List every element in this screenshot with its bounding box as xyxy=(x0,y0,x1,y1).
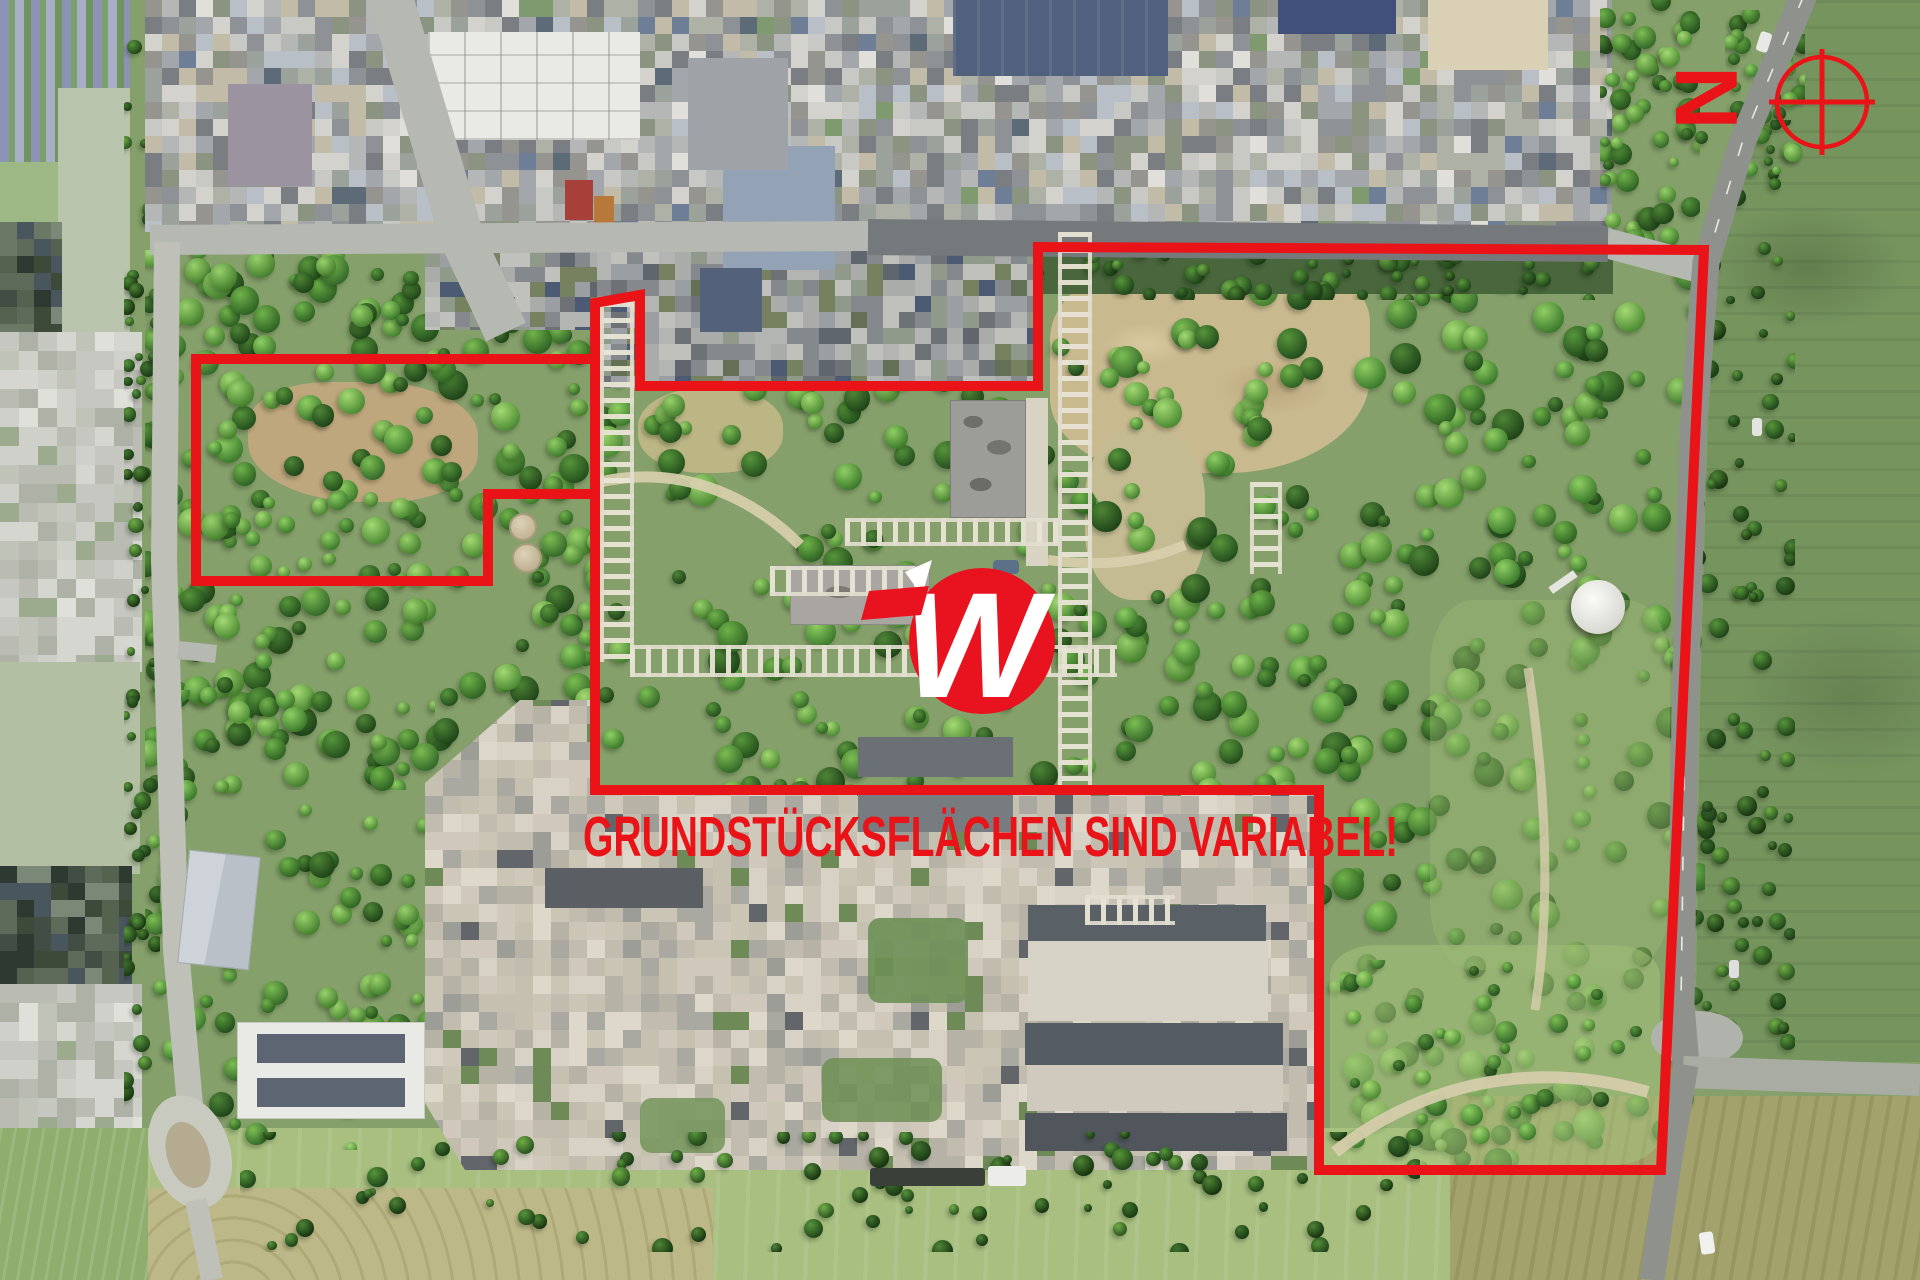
mosaic-cell xyxy=(502,221,520,232)
tree-blob xyxy=(367,1167,388,1188)
mosaic-cell xyxy=(1055,868,1074,887)
tree-blob xyxy=(549,351,567,369)
mosaic-cell xyxy=(57,389,77,409)
mosaic-cell xyxy=(808,0,826,18)
mosaic-cell xyxy=(995,280,1012,297)
mosaic-cell xyxy=(883,344,900,361)
tree-blob xyxy=(1707,729,1727,749)
mosaic-cell xyxy=(791,34,809,52)
mosaic-cell xyxy=(621,187,639,205)
mosaic-cell xyxy=(979,264,996,281)
mosaic-cell xyxy=(383,34,401,52)
tree-blob xyxy=(215,780,229,794)
mosaic-cell xyxy=(1012,187,1030,205)
mosaic-cell xyxy=(821,958,840,977)
mosaic-cell xyxy=(706,204,724,222)
mosaic-cell xyxy=(803,868,822,887)
mosaic-cell xyxy=(947,1084,966,1103)
mosaic-cell xyxy=(910,204,928,222)
mosaic-cell xyxy=(978,153,996,171)
mosaic-cell xyxy=(145,136,163,154)
mosaic-cell xyxy=(545,282,561,298)
tree-blob xyxy=(1356,1205,1371,1220)
tree-blob xyxy=(866,1215,879,1228)
mosaic-cell xyxy=(1454,85,1472,103)
mosaic-cell xyxy=(587,153,605,171)
mosaic-cell xyxy=(621,221,639,232)
mosaic-cell xyxy=(1011,360,1028,377)
mosaic-cell xyxy=(1539,204,1557,222)
mosaic-cell xyxy=(944,153,962,171)
mosaic-cell xyxy=(659,264,676,281)
mosaic-cell xyxy=(230,0,248,18)
pipe-rack-long xyxy=(630,645,1117,677)
mosaic-cell xyxy=(497,742,516,761)
mosaic-cell xyxy=(545,297,561,313)
mosaic-cell xyxy=(51,239,62,257)
tree-blob xyxy=(1426,1095,1447,1116)
mosaic-cell xyxy=(76,1079,96,1099)
mosaic-cell xyxy=(1284,119,1302,137)
tree-blob xyxy=(1717,812,1727,822)
mosaic-cell xyxy=(995,221,1013,232)
tree-blob xyxy=(246,531,261,546)
mosaic-cell xyxy=(1289,1066,1308,1085)
mosaic-cell xyxy=(1217,868,1236,887)
mosaic-cell xyxy=(965,1084,984,1103)
tree-blob xyxy=(1500,1043,1510,1053)
mosaic-cell xyxy=(38,617,58,637)
mosaic-cell xyxy=(1307,976,1320,995)
mosaic-cell xyxy=(1556,119,1574,137)
tree-blob xyxy=(132,849,145,862)
mosaic-cell xyxy=(264,187,282,205)
tree-blob xyxy=(612,1167,630,1185)
mosaic-cell xyxy=(0,951,18,969)
tree-blob xyxy=(1393,1060,1405,1072)
tree-blob xyxy=(1313,692,1344,723)
mosaic-cell xyxy=(947,312,964,329)
tree-blob xyxy=(578,602,596,620)
mosaic-cell xyxy=(349,68,367,86)
mosaic-cell xyxy=(145,51,163,69)
mosaic-cell xyxy=(785,1102,804,1121)
mosaic-cell xyxy=(1182,204,1200,222)
mosaic-cell xyxy=(569,1084,588,1103)
mosaic-cell xyxy=(440,252,456,268)
mosaic-cell xyxy=(963,376,980,388)
mosaic-cell xyxy=(947,296,964,313)
mosaic-cell xyxy=(659,376,676,388)
mosaic-cell xyxy=(1505,187,1523,205)
mosaic-cell xyxy=(162,85,180,103)
tree-blob xyxy=(388,563,401,576)
mosaic-cell xyxy=(19,560,39,580)
mosaic-cell xyxy=(1437,85,1455,103)
mosaic-cell xyxy=(1001,976,1020,995)
tree-blob xyxy=(1744,162,1758,176)
mosaic-cell xyxy=(57,427,77,447)
mosaic-cell xyxy=(1131,153,1149,171)
mosaic-cell xyxy=(533,1102,552,1121)
mosaic-cell xyxy=(963,312,980,329)
mosaic-cell xyxy=(1097,119,1115,137)
mosaic-cell xyxy=(332,187,350,205)
mosaic-cell xyxy=(623,1084,642,1103)
mosaic-cell xyxy=(757,17,775,35)
tree-blob xyxy=(1669,157,1679,167)
mosaic-cell xyxy=(1335,119,1353,137)
mosaic-cell xyxy=(787,360,804,377)
mosaic-cell xyxy=(34,917,52,935)
mosaic-cell xyxy=(995,376,1012,388)
mosaic-cell xyxy=(1556,102,1574,120)
tree-blob xyxy=(798,536,824,562)
tree-blob xyxy=(1124,483,1140,499)
mosaic-cell xyxy=(1352,153,1370,171)
mosaic-cell xyxy=(530,267,546,283)
mosaic-cell xyxy=(1505,85,1523,103)
mosaic-cell xyxy=(95,465,115,485)
mosaic-cell xyxy=(1437,136,1455,154)
mosaic-cell xyxy=(605,1048,624,1067)
mosaic-cell xyxy=(76,1022,96,1042)
mosaic-cell xyxy=(315,204,333,222)
tree-blob xyxy=(132,917,144,929)
mosaic-cell xyxy=(1216,68,1234,86)
mosaic-cell xyxy=(1284,85,1302,103)
mosaic-cell xyxy=(655,153,673,171)
mosaic-cell xyxy=(1335,170,1353,188)
mosaic-cell xyxy=(1301,136,1319,154)
mosaic-cell xyxy=(1199,0,1217,18)
mosaic-cell xyxy=(1267,153,1285,171)
mosaic-cell xyxy=(713,904,732,923)
tree-blob xyxy=(1350,1078,1360,1088)
tree-blob xyxy=(1672,1047,1691,1066)
mosaic-cell xyxy=(655,0,673,18)
mosaic-cell xyxy=(944,204,962,222)
mosaic-cell xyxy=(910,136,928,154)
mosaic-cell xyxy=(1386,102,1404,120)
tree-blob xyxy=(1259,1202,1268,1211)
mosaic-cell xyxy=(1148,85,1166,103)
mosaic-cell xyxy=(1403,204,1421,222)
mosaic-cell xyxy=(1352,119,1370,137)
mosaic-cell xyxy=(876,17,894,35)
mosaic-cell xyxy=(785,922,804,941)
tree-blob xyxy=(127,696,139,708)
tree-blob xyxy=(771,1243,782,1252)
mosaic-cell xyxy=(479,868,498,887)
mosaic-cell xyxy=(1318,68,1336,86)
mosaic-cell xyxy=(332,34,350,52)
mosaic-cell xyxy=(349,0,367,18)
car-east-4 xyxy=(1699,1231,1716,1255)
mosaic-cell xyxy=(785,1048,804,1067)
mosaic-cell xyxy=(1001,994,1020,1013)
mosaic-cell xyxy=(315,170,333,188)
mosaic-cell xyxy=(927,221,945,232)
mosaic-cell xyxy=(731,1030,750,1049)
mosaic-cell xyxy=(500,327,516,330)
mosaic-cell xyxy=(383,85,401,103)
mosaic-cell xyxy=(575,267,591,283)
dark-blue-roof xyxy=(953,0,1168,76)
mosaic-cell xyxy=(162,34,180,52)
tree-blob xyxy=(1342,269,1351,278)
tree-blob xyxy=(1210,534,1238,562)
mosaic-cell xyxy=(479,1102,498,1121)
mosaic-cell xyxy=(1556,85,1574,103)
mosaic-cell xyxy=(1573,68,1591,86)
mosaic-cell xyxy=(851,312,868,329)
mosaic-cell xyxy=(281,17,299,35)
lot-green-2 xyxy=(822,1058,942,1122)
mosaic-cell xyxy=(983,940,1002,959)
mosaic-cell xyxy=(0,1098,20,1118)
tree-blob xyxy=(294,301,315,322)
mosaic-cell xyxy=(38,1041,58,1061)
tree-blob xyxy=(1254,283,1271,300)
mosaic-cell xyxy=(1307,940,1320,959)
mosaic-cell xyxy=(0,370,20,390)
mosaic-cell xyxy=(57,541,77,561)
mosaic-cell xyxy=(145,153,163,171)
mosaic-cell xyxy=(1284,170,1302,188)
mosaic-cell xyxy=(808,51,826,69)
tree-blob xyxy=(205,326,225,346)
mosaic-cell xyxy=(915,280,932,297)
mosaic-cell xyxy=(791,17,809,35)
mosaic-cell xyxy=(899,264,916,281)
tree-blob xyxy=(370,864,392,886)
mosaic-cell xyxy=(983,994,1002,1013)
mosaic-cell xyxy=(1250,153,1268,171)
mosaic-cell xyxy=(0,560,20,580)
mosaic-cell xyxy=(1027,344,1038,361)
mosaic-cell xyxy=(145,0,163,18)
tree-blob xyxy=(715,716,732,733)
mosaic-cell xyxy=(1369,153,1387,171)
tree-blob xyxy=(253,335,276,358)
mosaic-cell xyxy=(1505,153,1523,171)
tree-blob xyxy=(1780,1034,1795,1050)
mosaic-cell xyxy=(638,170,656,188)
tree-blob xyxy=(285,1233,299,1247)
mosaic-cell xyxy=(1001,1048,1020,1067)
mosaic-cell xyxy=(931,360,948,377)
mosaic-cell xyxy=(638,153,656,171)
mosaic-cell xyxy=(749,1102,768,1121)
mosaic-cell xyxy=(587,1084,606,1103)
mosaic-cell xyxy=(931,264,948,281)
mosaic-cell xyxy=(76,984,96,1004)
mosaic-cell xyxy=(983,868,1002,887)
tree-blob xyxy=(1768,841,1777,850)
mosaic-cell xyxy=(979,312,996,329)
tree-blob xyxy=(370,766,395,791)
mosaic-cell xyxy=(1011,280,1028,297)
mosaic-cell xyxy=(461,868,480,887)
tree-blob xyxy=(1766,145,1775,154)
mosaic-cell xyxy=(575,327,591,330)
mosaic-cell xyxy=(515,312,531,328)
mosaic-cell xyxy=(1403,170,1421,188)
tree-blob xyxy=(1770,993,1787,1010)
tree-blob xyxy=(1380,286,1396,300)
tree-blob xyxy=(911,1141,931,1161)
mosaic-cell xyxy=(247,0,265,18)
mosaic-cell xyxy=(641,940,660,959)
mosaic-cell xyxy=(545,267,561,283)
mosaic-cell xyxy=(1012,204,1030,222)
mosaic-cell xyxy=(425,1048,444,1067)
mosaic-cell xyxy=(835,296,852,313)
mosaic-cell xyxy=(545,327,561,330)
mosaic-cell xyxy=(76,617,96,637)
mosaic-cell xyxy=(961,187,979,205)
mosaic-cell xyxy=(349,187,367,205)
mosaic-cell xyxy=(1556,170,1574,188)
tree-blob xyxy=(1605,73,1619,87)
mosaic-cell xyxy=(1182,68,1200,86)
ruin-building-a xyxy=(950,400,1026,518)
mosaic-cell xyxy=(515,886,534,905)
mosaic-cell xyxy=(839,976,858,995)
mosaic-cell xyxy=(965,904,984,923)
mosaic-cell xyxy=(332,153,350,171)
mosaic-cell xyxy=(57,370,77,390)
mosaic-cell xyxy=(315,221,333,232)
mosaic-cell xyxy=(76,1060,96,1080)
mosaic-cell xyxy=(536,221,554,232)
tree-blob xyxy=(1197,264,1210,277)
mosaic-cell xyxy=(560,252,576,268)
mosaic-cell xyxy=(19,389,39,409)
mosaic-cell xyxy=(1369,51,1387,69)
mosaic-cell xyxy=(515,1048,534,1067)
mosaic-cell xyxy=(468,170,486,188)
mosaic-cell xyxy=(551,706,570,725)
mosaic-cell xyxy=(461,922,480,941)
mosaic-cell xyxy=(675,376,692,388)
mosaic-cell xyxy=(749,994,768,1013)
mosaic-cell xyxy=(315,119,333,137)
mosaic-cell xyxy=(1301,153,1319,171)
mosaic-cell xyxy=(867,280,884,297)
tree-blob xyxy=(1388,1136,1409,1157)
tree-blob xyxy=(250,555,272,577)
tree-blob xyxy=(1602,237,1624,255)
mosaic-cell xyxy=(767,922,786,941)
tree-blob xyxy=(295,910,320,935)
mosaic-cell xyxy=(739,344,756,361)
mosaic-cell xyxy=(366,34,384,52)
mosaic-cell xyxy=(821,1012,840,1031)
mosaic-cell xyxy=(515,868,534,887)
tree-blob xyxy=(741,451,767,477)
tree-blob xyxy=(364,620,387,643)
mosaic-cell xyxy=(899,344,916,361)
tree-blob xyxy=(824,423,844,443)
mosaic-cell xyxy=(515,297,531,313)
mosaic-cell xyxy=(247,221,265,232)
tree-blob xyxy=(369,973,391,995)
mosaic-cell xyxy=(859,170,877,188)
mosaic-cell xyxy=(497,778,516,797)
tree-blob xyxy=(1778,963,1795,980)
mosaic-cell xyxy=(623,940,642,959)
mosaic-cell xyxy=(551,922,570,941)
tree-blob xyxy=(691,1227,706,1242)
mosaic-cell xyxy=(366,170,384,188)
mosaic-cell xyxy=(497,1102,516,1121)
tree-blob xyxy=(321,531,340,550)
mosaic-cell xyxy=(1539,187,1557,205)
mosaic-cell xyxy=(1029,153,1047,171)
tan-roof xyxy=(1428,0,1548,70)
mosaic-cell xyxy=(1046,204,1064,222)
mosaic-cell xyxy=(689,17,707,35)
mosaic-cell xyxy=(859,68,877,86)
mosaic-cell xyxy=(145,68,163,86)
tree-blob xyxy=(1287,623,1309,645)
mosaic-cell xyxy=(713,886,732,905)
mosaic-cell xyxy=(85,900,103,918)
mosaic-cell xyxy=(851,280,868,297)
mosaic-cell xyxy=(95,503,115,523)
mosaic-cell xyxy=(264,204,282,222)
tree-blob xyxy=(124,359,135,372)
mosaic-cell xyxy=(560,267,576,283)
mosaic-cell xyxy=(1488,187,1506,205)
mosaic-cell xyxy=(17,866,35,884)
mosaic-cell xyxy=(213,221,231,232)
mosaic-cell xyxy=(1250,170,1268,188)
mosaic-cell xyxy=(1284,136,1302,154)
mosaic-cell xyxy=(883,328,900,345)
mosaic-cell xyxy=(349,170,367,188)
tree-blob xyxy=(1743,117,1753,127)
mosaic-cell xyxy=(944,119,962,137)
tree-blob xyxy=(544,476,563,495)
tree-blob xyxy=(261,998,275,1012)
mosaic-cell xyxy=(1001,1012,1020,1031)
mosaic-cell xyxy=(1420,85,1438,103)
tree-blob xyxy=(125,317,134,326)
mosaic-cell xyxy=(497,958,516,977)
mosaic-cell xyxy=(400,68,418,86)
mosaic-cell xyxy=(349,102,367,120)
mosaic-cell xyxy=(461,1084,480,1103)
tree-blob xyxy=(493,1149,509,1165)
mosaic-cell xyxy=(1250,102,1268,120)
mosaic-cell xyxy=(1271,868,1290,887)
mosaic-cell xyxy=(1271,922,1290,941)
mosaic-cell xyxy=(95,389,115,409)
mosaic-cell xyxy=(1318,34,1336,52)
mosaic-cell xyxy=(1403,102,1421,120)
mosaic-cell xyxy=(519,170,537,188)
mosaic-cell xyxy=(1012,221,1030,232)
mosaic-cell xyxy=(19,446,39,466)
mosaic-cell xyxy=(425,886,444,905)
mosaic-cell xyxy=(947,360,964,377)
mosaic-cell xyxy=(38,351,58,371)
tree-blob xyxy=(435,1142,450,1157)
mosaic-cell xyxy=(57,446,77,466)
